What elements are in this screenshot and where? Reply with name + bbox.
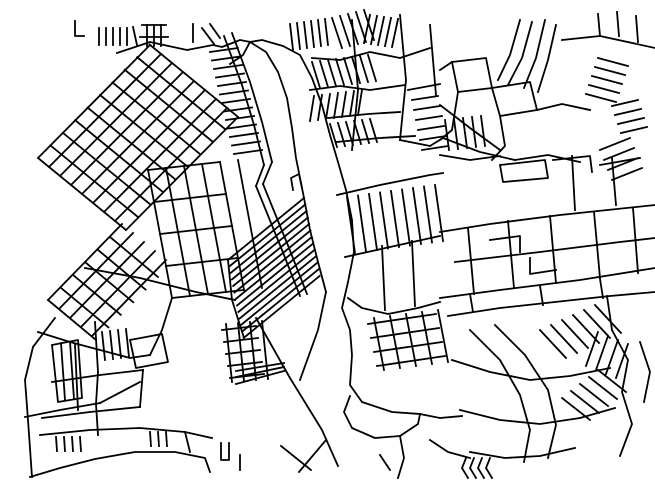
street-segment: [492, 82, 537, 116]
street-segment: [422, 312, 432, 364]
street-segment: [380, 193, 388, 249]
street-segment: [150, 298, 172, 355]
street-segment: [452, 58, 492, 92]
street-segment: [600, 279, 603, 298]
street-segment: [30, 452, 210, 477]
street-segment: [592, 76, 622, 84]
street-segment: [311, 21, 314, 47]
street-segment: [80, 437, 81, 451]
street-segment: [226, 350, 260, 354]
street-segment: [118, 330, 121, 358]
street-segment: [470, 448, 575, 458]
street-segment: [300, 292, 326, 380]
street-segment: [416, 116, 442, 120]
street-segment: [226, 116, 254, 120]
street-segment: [304, 22, 307, 48]
street-segment: [636, 16, 638, 42]
street-segment: [398, 436, 404, 478]
street-segment: [72, 437, 73, 451]
street-segment: [234, 150, 262, 154]
street-segment: [281, 446, 311, 470]
street-segment: [133, 27, 137, 45]
street-segment: [228, 362, 262, 366]
street-segment: [380, 455, 390, 470]
street-segment: [185, 432, 190, 452]
street-segment: [572, 156, 575, 210]
street-segment: [390, 316, 400, 368]
street-segment: [369, 194, 377, 250]
street-segment: [210, 48, 238, 52]
street-segment: [374, 342, 442, 352]
street-segment: [440, 62, 452, 70]
street-segment: [348, 298, 440, 314]
street-segment: [607, 296, 612, 330]
street-segment: [420, 414, 462, 418]
street-segment: [290, 24, 293, 50]
street-segment: [150, 45, 238, 117]
street-segment: [344, 396, 420, 438]
street-segment: [604, 148, 634, 160]
street-segment: [580, 384, 608, 406]
street-segment: [70, 342, 74, 399]
street-segment: [598, 370, 626, 392]
street-segment: [391, 191, 399, 247]
street-segment: [98, 250, 146, 290]
street-segment: [214, 65, 242, 69]
street-segment: [412, 241, 415, 306]
street-segment: [337, 173, 443, 195]
street-segment: [612, 158, 616, 205]
street-segment: [486, 458, 492, 478]
street-segment: [340, 16, 350, 46]
street-segment: [130, 334, 168, 368]
street-segment: [382, 246, 385, 310]
street-segment: [537, 104, 590, 110]
street-segment: [418, 126, 444, 130]
street-segment: [478, 458, 484, 478]
street-segment: [345, 236, 440, 257]
street-segment: [612, 100, 638, 106]
street-segment: [540, 286, 543, 305]
street-segment: [412, 96, 438, 100]
street-segment: [56, 437, 57, 451]
street-segment: [334, 93, 338, 118]
street-segment: [310, 96, 314, 121]
street-segment: [110, 331, 113, 359]
street-segment: [448, 292, 655, 316]
street-segment: [61, 343, 65, 400]
street-segment: [595, 305, 621, 333]
street-segment: [344, 58, 352, 84]
street-segment: [460, 408, 615, 424]
street-segment: [500, 160, 548, 182]
street-segment: [422, 146, 448, 150]
street-segment: [358, 90, 362, 115]
street-segment: [621, 127, 647, 133]
street-segment: [202, 28, 214, 44]
street-segment: [374, 318, 384, 370]
street-segment: [595, 67, 625, 75]
street-segment: [618, 118, 644, 124]
map-viewport: [0, 0, 655, 484]
street-segment: [598, 14, 600, 36]
street-segment: [414, 106, 440, 110]
street-segment: [368, 55, 376, 81]
street-segment: [492, 116, 505, 160]
street-segment: [232, 142, 260, 146]
street-segment: [551, 325, 577, 353]
street-segment: [371, 328, 439, 338]
street-segment: [250, 40, 420, 414]
street-segment: [166, 432, 167, 446]
street-segment: [222, 99, 250, 103]
street-segment: [299, 440, 326, 472]
street-segment: [33, 318, 55, 347]
street-segment: [325, 19, 328, 45]
street-segment: [589, 377, 617, 399]
street-segment: [350, 91, 354, 116]
street-segment: [64, 437, 65, 451]
street-segment: [100, 95, 188, 167]
street-segment: [38, 158, 126, 230]
street-segment: [228, 125, 256, 129]
street-segment: [150, 432, 151, 446]
street-segment: [63, 133, 151, 205]
street-segment: [221, 443, 229, 460]
street-segment: [470, 458, 476, 478]
street-segment: [617, 12, 619, 36]
street-segment: [110, 237, 158, 277]
street-segment: [424, 187, 432, 243]
street-segment: [640, 342, 650, 402]
street-segment: [462, 458, 468, 478]
street-segment: [385, 18, 391, 46]
street-segment: [440, 155, 500, 160]
street-segment: [332, 18, 342, 48]
street-segment: [328, 60, 336, 86]
street-segment: [318, 20, 321, 46]
street-segment: [378, 17, 384, 45]
street-segment: [562, 36, 655, 48]
street-segment: [498, 20, 520, 80]
street-segment: [347, 197, 355, 253]
street-segment: [490, 236, 520, 252]
street-segment: [137, 57, 225, 129]
street-segment: [400, 15, 406, 140]
street-segment: [413, 188, 421, 244]
street-segment: [75, 21, 84, 36]
street-segment: [454, 119, 458, 149]
street-segment: [615, 109, 641, 115]
street-segment: [95, 322, 98, 404]
street-segment: [589, 85, 619, 93]
street-segment: [606, 340, 618, 374]
street-segment: [562, 398, 590, 420]
street-segment: [495, 325, 556, 458]
street-segment: [328, 112, 400, 118]
street-segment: [291, 174, 302, 190]
street-segment: [210, 24, 220, 38]
street-segment: [600, 138, 630, 150]
street-segment: [360, 56, 368, 82]
street-segment: [440, 205, 655, 232]
street-segment: [402, 190, 410, 246]
street-segment: [586, 94, 616, 102]
street-segment: [336, 59, 344, 85]
street-segment: [140, 370, 143, 407]
street-segment: [435, 185, 443, 241]
street-segment: [342, 92, 346, 117]
street-segment: [102, 332, 105, 360]
street-segment: [42, 407, 140, 418]
street-segment: [470, 294, 473, 312]
street-segment: [406, 314, 416, 366]
street-segment: [297, 23, 300, 49]
street-segment: [463, 118, 467, 148]
street-segment: [430, 440, 470, 458]
street-segment: [112, 82, 200, 154]
street-segment: [571, 391, 599, 413]
street-segment: [320, 61, 328, 87]
street-network-canvas: [0, 0, 655, 484]
street-segment: [126, 329, 129, 357]
street-segment: [455, 238, 655, 262]
street-segment: [481, 116, 485, 146]
street-segment: [48, 224, 122, 300]
street-segment: [392, 19, 398, 47]
street-segment: [438, 310, 448, 362]
street-segment: [358, 196, 366, 252]
street-segment: [312, 48, 430, 60]
street-segment: [562, 320, 588, 348]
street-segment: [612, 168, 642, 180]
street-segment: [125, 70, 213, 142]
street-segment: [598, 58, 628, 66]
street-segment: [100, 382, 140, 403]
street-segment: [230, 133, 258, 137]
street-segment: [530, 258, 556, 274]
street-segment: [326, 94, 330, 119]
street-segment: [377, 356, 445, 366]
street-segment: [312, 62, 320, 88]
street-segment: [368, 314, 436, 324]
street-segment: [50, 145, 138, 217]
street-segment: [540, 330, 566, 358]
street-segment: [85, 268, 235, 300]
street-segment: [158, 432, 159, 446]
street-segment: [25, 347, 33, 477]
street-segment: [256, 318, 338, 466]
